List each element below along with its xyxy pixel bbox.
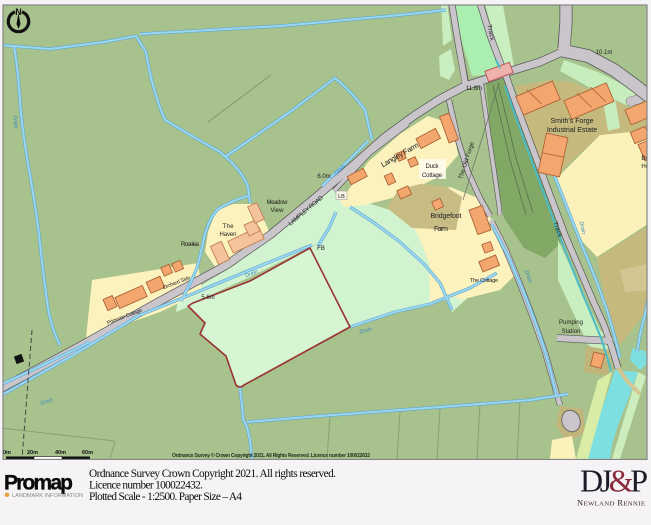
svg-text:Cottage: Cottage <box>422 173 443 179</box>
svg-text:Duck: Duck <box>426 164 440 170</box>
svg-text:Meadow: Meadow <box>267 200 289 206</box>
svg-text:40m: 40m <box>55 450 66 456</box>
svg-text:Farm: Farm <box>434 226 448 233</box>
svg-text:Bridge: Bridge <box>641 156 651 162</box>
svg-text:6.0m: 6.0m <box>317 174 330 180</box>
svg-text:Licence number 100022432.: Licence number 100022432. <box>89 480 203 492</box>
svg-text:FB: FB <box>317 246 325 252</box>
svg-text:Pumping: Pumping <box>559 320 583 326</box>
svg-text:10.1m: 10.1m <box>596 50 613 56</box>
svg-text:20m: 20m <box>27 450 38 456</box>
svg-text:Roselea: Roselea <box>181 242 200 248</box>
svg-text:Station: Station <box>562 329 581 335</box>
svg-text:5.6m: 5.6m <box>201 295 214 301</box>
svg-text:N: N <box>15 7 22 17</box>
svg-text:Industrial Estate: Industrial Estate <box>547 127 597 134</box>
svg-text:11.8m: 11.8m <box>466 86 482 92</box>
svg-text:NEWLAND RENNIE: NEWLAND RENNIE <box>577 499 645 508</box>
svg-text:LANDMARK INFORMATION: LANDMARK INFORMATION <box>12 493 83 499</box>
svg-text:Bridgefoot: Bridgefoot <box>431 213 462 220</box>
svg-text:Haven: Haven <box>220 232 237 238</box>
svg-text:Smith's Forge: Smith's Forge <box>551 118 594 125</box>
svg-text:Ordnance Survey © Crown Copyri: Ordnance Survey © Crown Copyright 2021. … <box>172 452 370 459</box>
svg-text:Promap: Promap <box>4 472 73 495</box>
svg-text:60m: 60m <box>82 450 93 456</box>
svg-text:The: The <box>223 224 235 230</box>
svg-text:LB: LB <box>338 194 345 200</box>
svg-text:View: View <box>271 208 285 214</box>
svg-text:Plotted Scale - 1:2500. Paper: Plotted Scale - 1:2500. Paper Size – A4 <box>89 491 242 503</box>
svg-text:0m: 0m <box>3 450 11 456</box>
svg-text:Ordnance Survey Crown Copyrigh: Ordnance Survey Crown Copyright 2021. Al… <box>89 468 336 480</box>
svg-text:House: House <box>641 164 651 170</box>
svg-text:The Cottage: The Cottage <box>470 278 498 284</box>
svg-text:DJ&P: DJ&P <box>580 463 648 499</box>
